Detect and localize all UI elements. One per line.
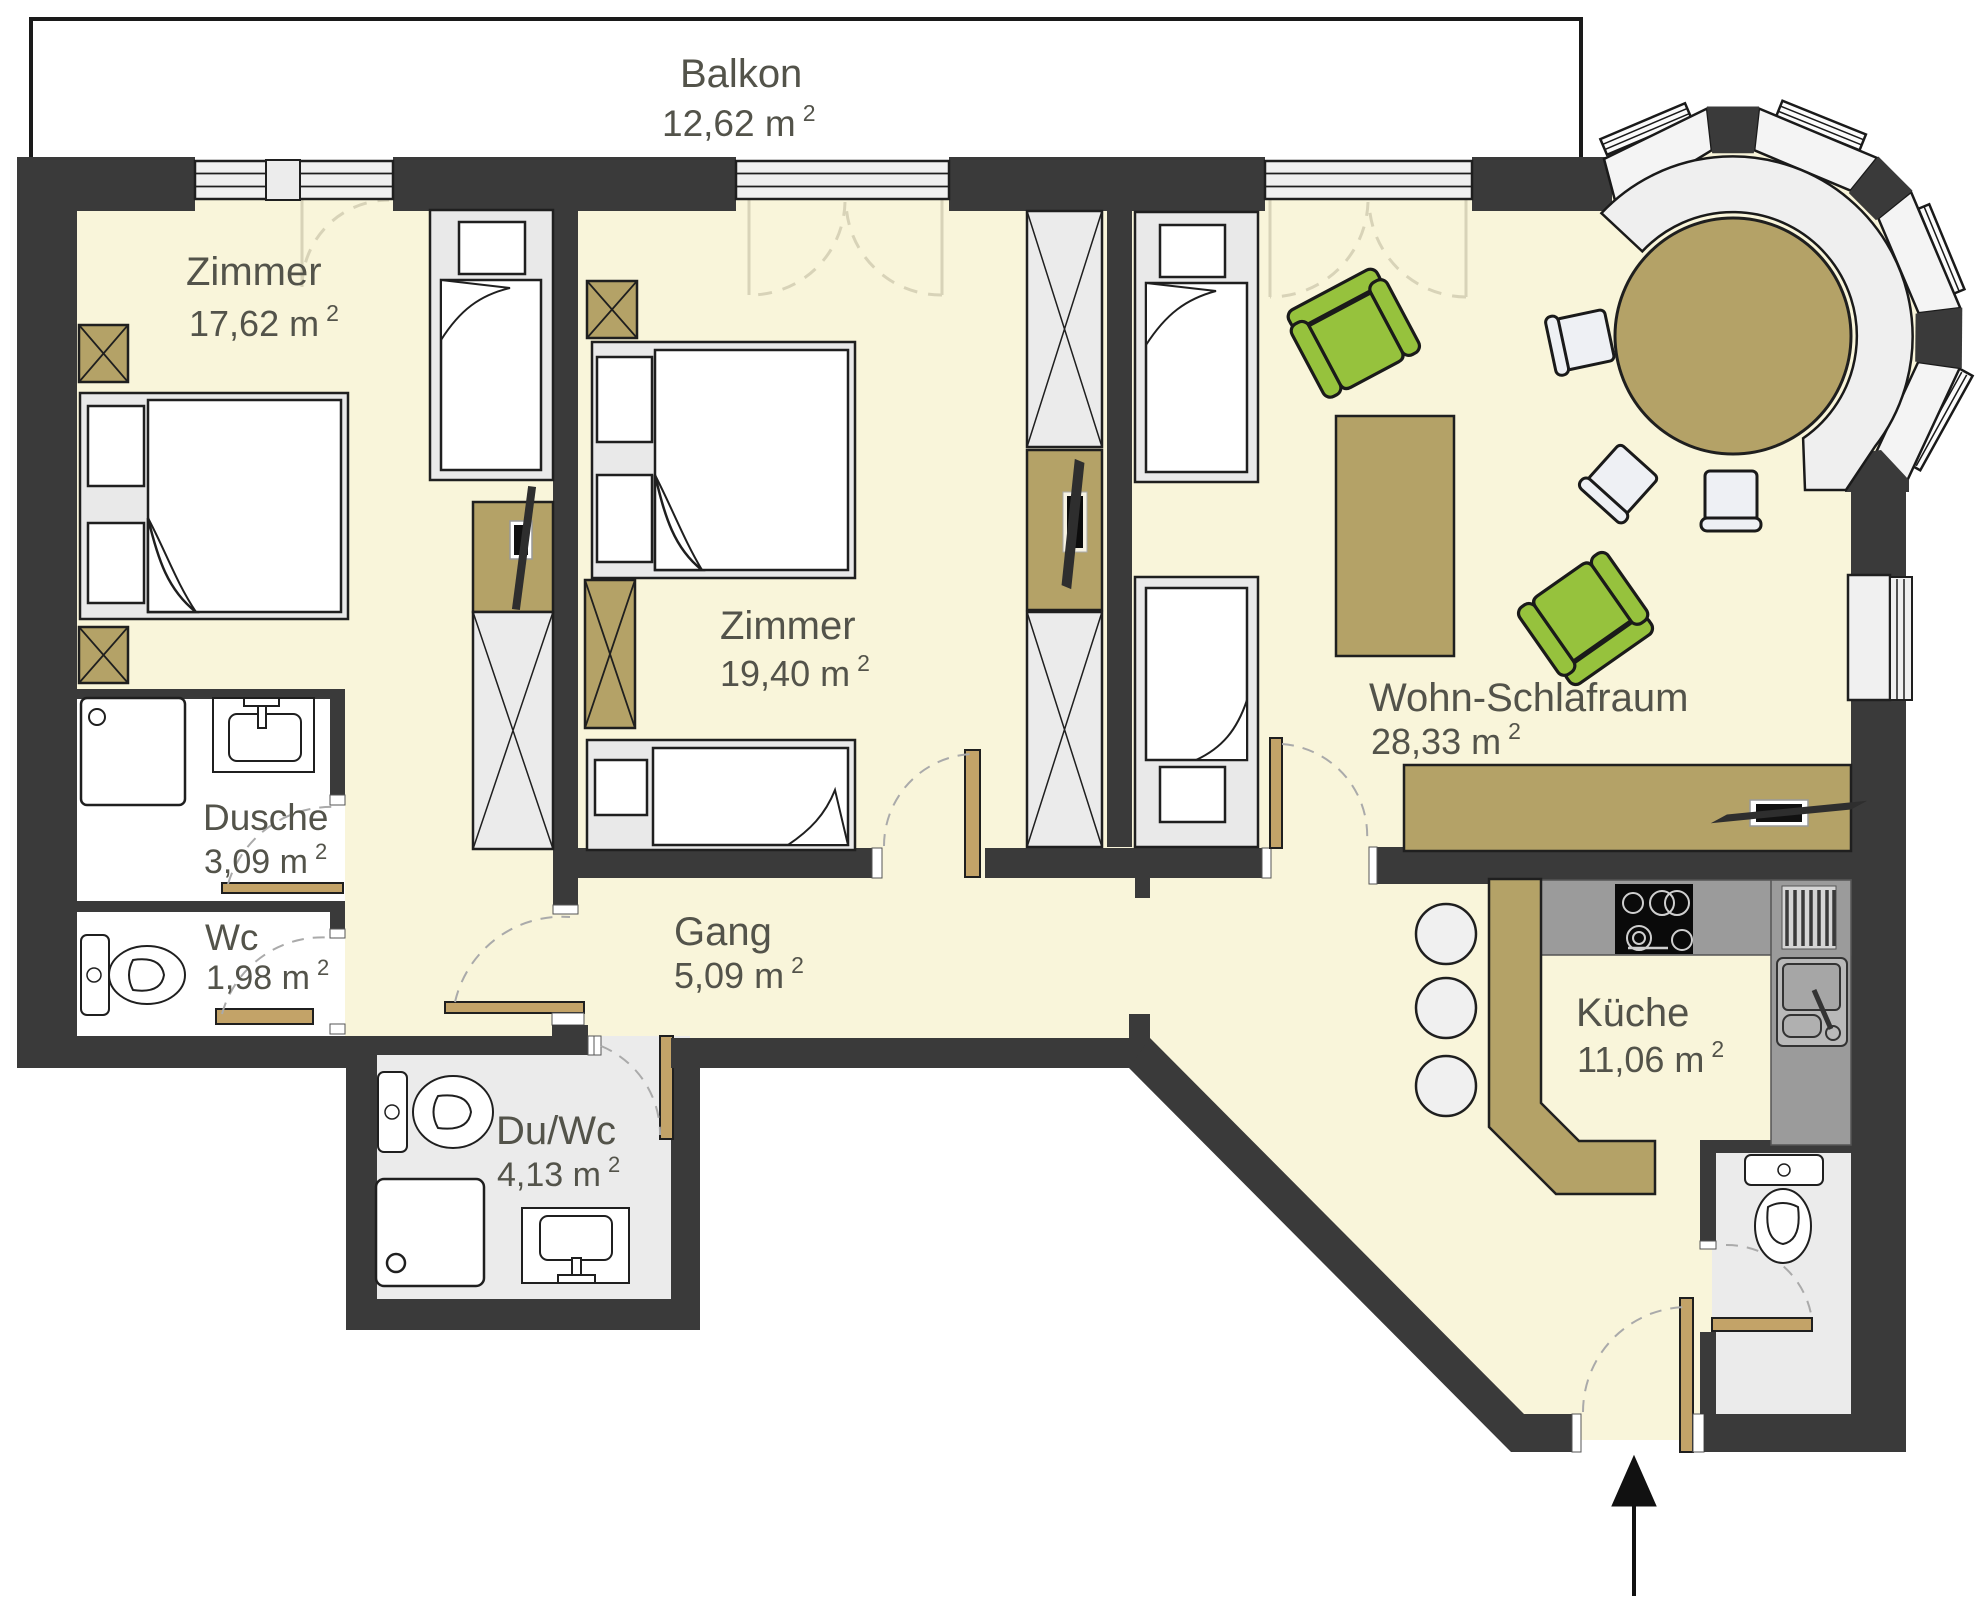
svg-text:Zimmer: Zimmer <box>720 604 856 648</box>
svg-text:Wohn-Schlafraum: Wohn-Schlafraum <box>1369 676 1688 720</box>
svg-text:Balkon: Balkon <box>680 52 802 96</box>
svg-text:12,62 m2: 12,62 m2 <box>662 100 816 144</box>
svg-text:Wc: Wc <box>205 917 258 958</box>
svg-text:19,40 m2: 19,40 m2 <box>720 650 870 694</box>
svg-text:17,62 m2: 17,62 m2 <box>189 300 339 344</box>
svg-text:Gang: Gang <box>674 910 772 954</box>
svg-text:Dusche: Dusche <box>203 797 328 838</box>
svg-text:Küche: Küche <box>1576 991 1689 1035</box>
svg-text:28,33 m2: 28,33 m2 <box>1371 718 1521 762</box>
svg-text:Zimmer: Zimmer <box>186 250 322 294</box>
svg-text:Du/Wc: Du/Wc <box>496 1109 616 1153</box>
svg-text:11,06 m2: 11,06 m2 <box>1577 1036 1724 1080</box>
